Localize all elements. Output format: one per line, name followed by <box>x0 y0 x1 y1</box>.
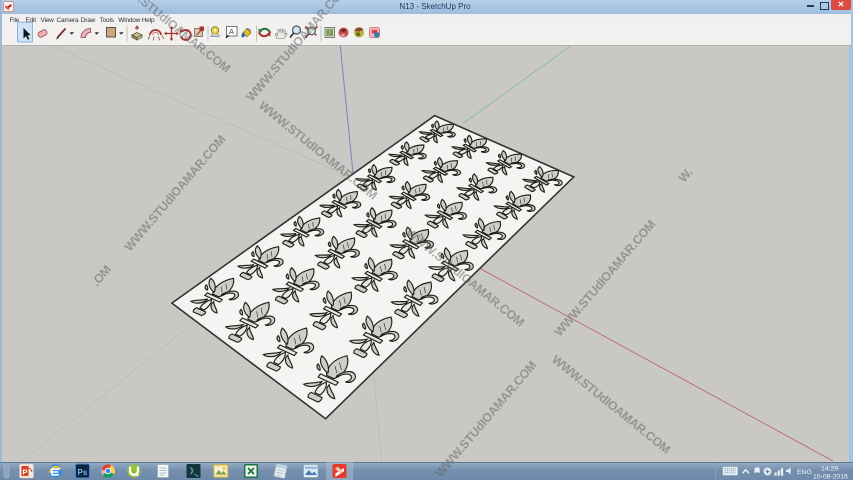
svg-text:ENG: ENG <box>797 469 812 476</box>
svg-text:10-08-2016: 10-08-2016 <box>813 474 848 480</box>
svg-text:14:29: 14:29 <box>821 466 838 473</box>
svg-text:Ps: Ps <box>78 468 88 477</box>
svg-text:P: P <box>23 468 28 477</box>
